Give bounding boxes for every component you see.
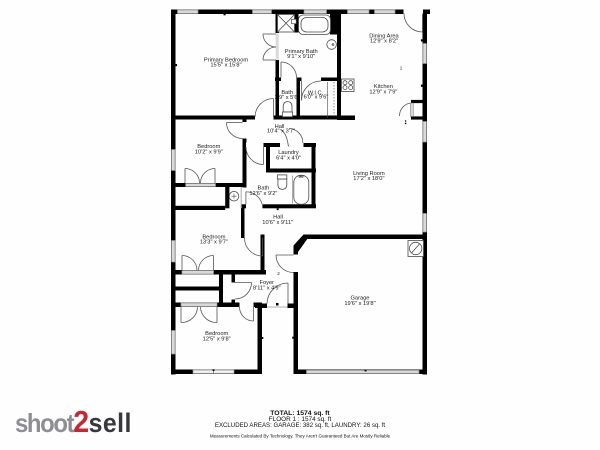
svg-text:13'3" x 9'7": 13'3" x 9'7": [200, 240, 228, 246]
svg-text:12'5" x 9'8": 12'5" x 9'8": [203, 336, 231, 342]
svg-text:12'9" x 7'9": 12'9" x 7'9": [369, 89, 397, 95]
svg-text:12'9" x 8'2": 12'9" x 8'2": [370, 39, 398, 45]
svg-text:6'0" x 9'6": 6'0" x 9'6": [304, 95, 329, 101]
svg-text:Measurements Calculated By Tec: Measurements Calculated By Technology. T…: [210, 433, 391, 438]
svg-text:10'6" x 9'11": 10'6" x 9'11": [262, 220, 293, 226]
svg-text:9'1" x 9'10": 9'1" x 9'10": [287, 54, 315, 60]
svg-text:6'4" x 4'0": 6'4" x 4'0": [276, 156, 301, 162]
svg-text:12'6" x 9'2": 12'6" x 9'2": [249, 191, 277, 197]
svg-text:19'6" x 19'8": 19'6" x 19'8": [344, 301, 375, 307]
svg-text:10'2" x 9'9": 10'2" x 9'9": [195, 150, 223, 156]
svg-text:Bath: Bath: [281, 90, 293, 96]
svg-text:15'5" x 15'8": 15'5" x 15'8": [210, 63, 241, 69]
svg-text:10'4" x 3'7": 10'4" x 3'7": [267, 129, 295, 135]
svg-text:EXCLUDED AREAS: GARAGE: 382 sq: EXCLUDED AREAS: GARAGE: 382 sq. ft, LAUN…: [215, 422, 386, 429]
svg-text:1: 1: [400, 66, 403, 71]
svg-text:2: 2: [277, 271, 280, 276]
svg-text:8'11" x 4'9": 8'11" x 4'9": [253, 286, 281, 292]
svg-text:17'2" x 18'0": 17'2" x 18'0": [353, 176, 384, 182]
